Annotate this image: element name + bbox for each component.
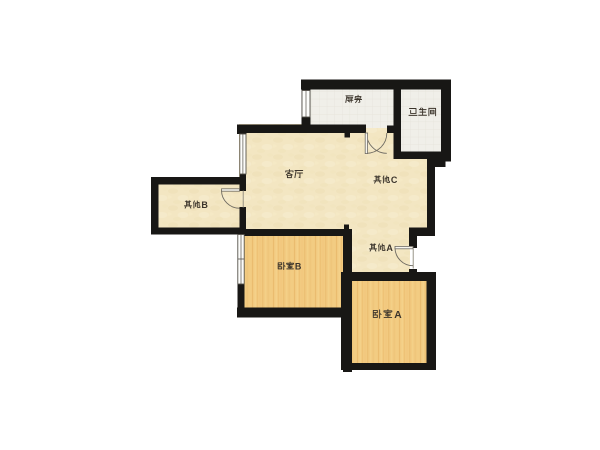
svg-text:C: C (391, 175, 398, 185)
svg-text:B: B (201, 200, 208, 210)
svg-text:A: A (394, 310, 402, 321)
svg-text:A: A (386, 243, 393, 253)
svg-text:B: B (295, 261, 302, 271)
